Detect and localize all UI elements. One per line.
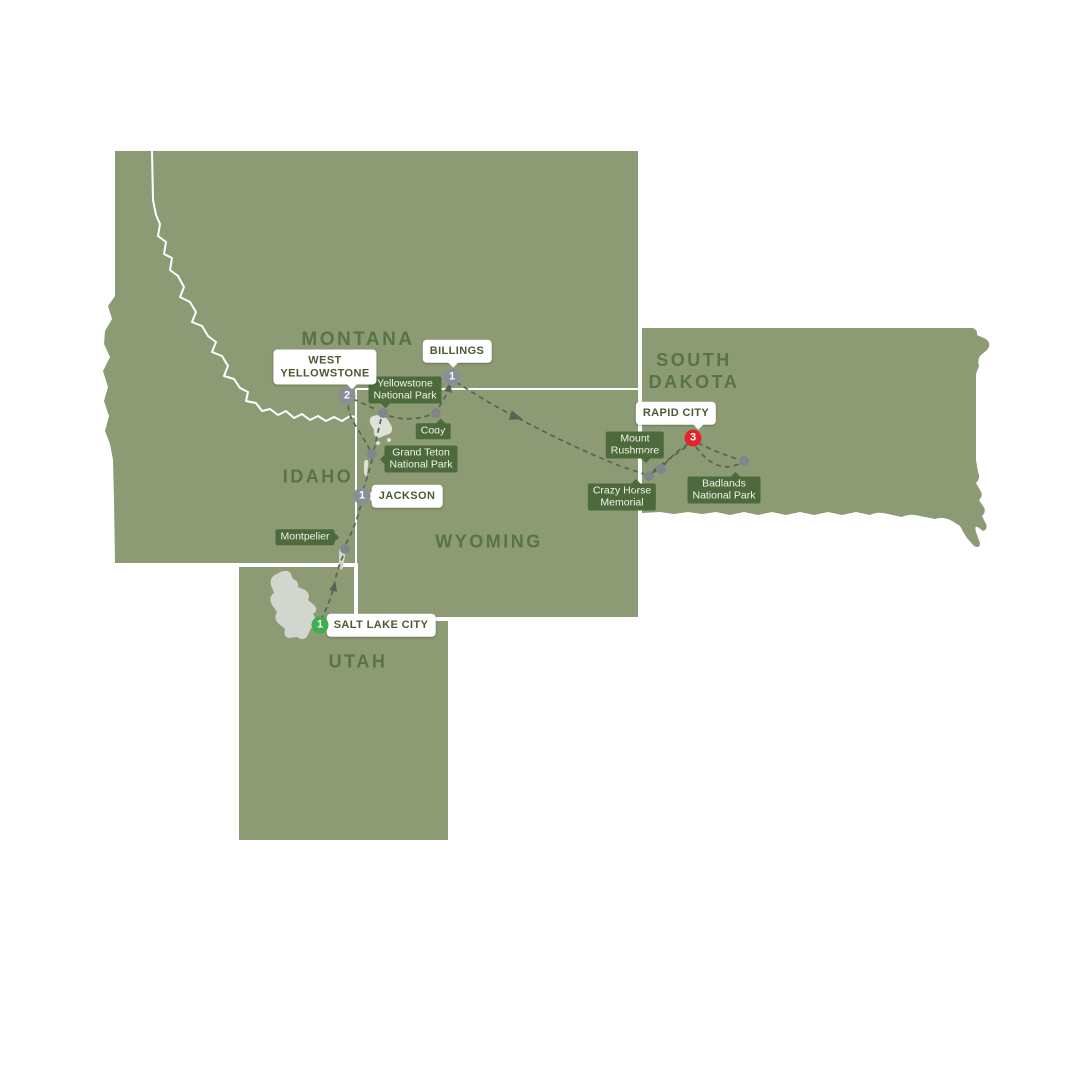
poi-badge-label-line2: Rushmore <box>611 445 659 457</box>
poi-badge-label-line1: Crazy Horse <box>593 486 651 498</box>
poi-badge-label-line2: National Park <box>389 459 452 471</box>
state-label-montana: MONTANA <box>301 329 414 351</box>
poi-badge-label-line1: Mount <box>611 434 659 446</box>
poi-badge-badlands: Badlands National Park <box>687 477 760 504</box>
state-label-south-dakota-line2: DAKOTA <box>649 371 740 393</box>
stop-marker-rapid-city: 3 <box>685 430 702 447</box>
itinerary-map: MONTANA IDAHO WYOMING UTAH SOUTH DAKOTA … <box>0 0 1080 1080</box>
poi-badge-label-line1: Grand Teton <box>389 448 452 460</box>
state-label-idaho: IDAHO <box>283 467 354 488</box>
poi-dot-cody <box>431 408 441 418</box>
stop-marker-salt-lake-city: 1 <box>312 617 329 634</box>
poi-badge-mount-rushmore: Mount Rushmore <box>606 432 664 459</box>
stop-marker-jackson: 1 <box>354 488 371 505</box>
stop-callout-west-yellowstone: WEST YELLOWSTONE <box>273 350 376 385</box>
stop-callout-label: JACKSON <box>379 490 436 502</box>
lake-speck-2 <box>387 438 391 442</box>
state-label-south-dakota: SOUTH DAKOTA <box>649 349 740 393</box>
poi-dot-montpelier <box>340 544 350 554</box>
poi-badge-grand-teton: Grand Teton National Park <box>384 446 457 473</box>
stop-callout-label: SALT LAKE CITY <box>334 619 429 631</box>
poi-badge-label-line1: Yellowstone <box>373 379 436 391</box>
state-label-utah: UTAH <box>329 652 388 673</box>
stop-callout-billings: BILLINGS <box>423 340 492 363</box>
poi-badge-montpelier: Montpelier <box>275 529 334 545</box>
poi-dot-badlands <box>739 456 749 466</box>
stop-callout-jackson: JACKSON <box>372 485 443 508</box>
stop-callout-label-line1: WEST <box>280 355 369 368</box>
poi-dot-crazy-horse <box>644 471 654 481</box>
poi-dot-mount-rushmore <box>656 464 666 474</box>
stop-callout-label: BILLINGS <box>430 345 485 357</box>
stop-callout-rapid-city: RAPID CITY <box>636 402 716 425</box>
poi-dot-yellowstone <box>378 408 388 418</box>
state-label-wyoming: WYOMING <box>435 532 543 553</box>
poi-badge-yellowstone: Yellowstone National Park <box>368 377 441 404</box>
state-label-south-dakota-line1: SOUTH <box>649 349 740 371</box>
stop-marker-billings: 1 <box>444 369 461 386</box>
poi-badge-label-line2: Memorial <box>593 497 651 509</box>
poi-dot-grand-teton <box>367 449 377 459</box>
stop-callout-salt-lake-city: SALT LAKE CITY <box>327 614 436 637</box>
poi-badge-label: Montpelier <box>280 530 329 542</box>
stop-callout-label-line2: YELLOWSTONE <box>280 367 369 380</box>
poi-badge-label-line1: Badlands <box>692 479 755 491</box>
poi-badge-label-line2: National Park <box>692 490 755 502</box>
stop-marker-west-yellowstone: 2 <box>339 388 356 405</box>
poi-badge-crazy-horse: Crazy Horse Memorial <box>588 484 656 511</box>
poi-badge-cody: Cody <box>416 423 451 439</box>
